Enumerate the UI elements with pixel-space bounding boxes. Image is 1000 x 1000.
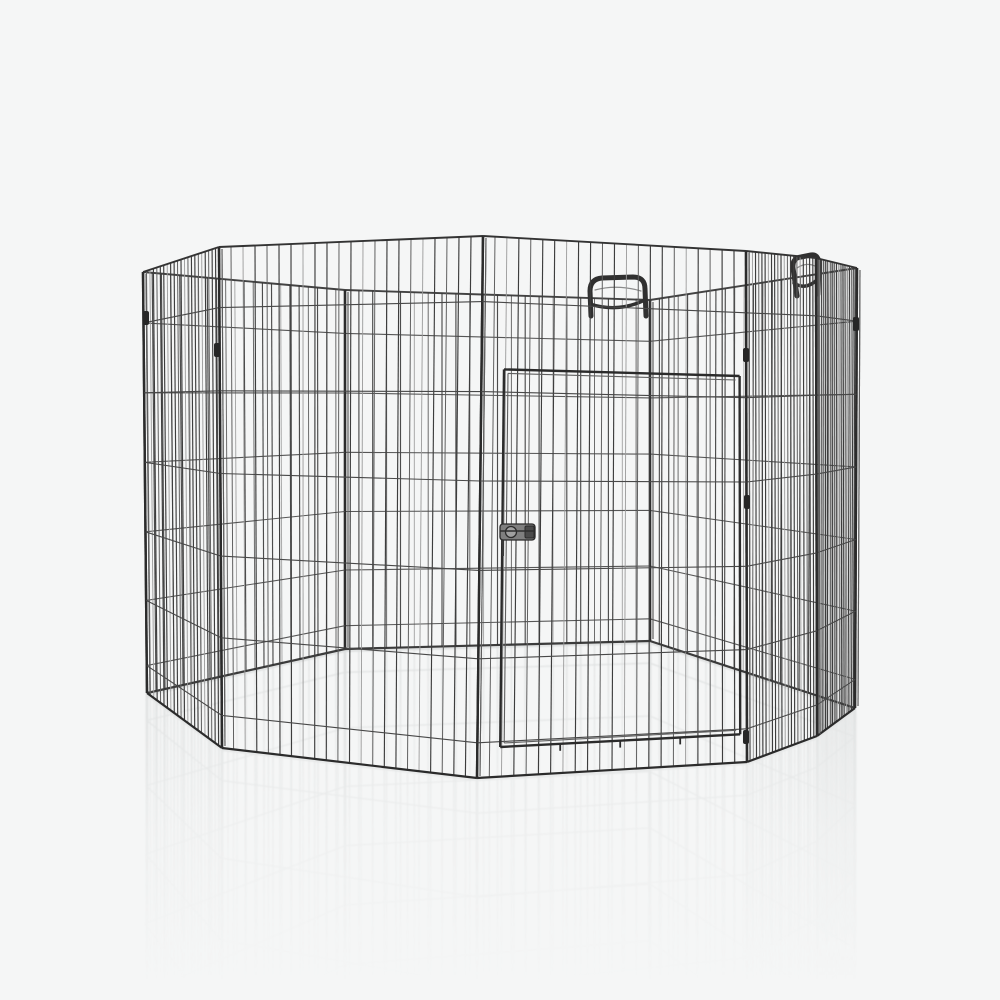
photo-stage	[0, 0, 1000, 1000]
product-image-playpen	[0, 0, 1000, 1000]
